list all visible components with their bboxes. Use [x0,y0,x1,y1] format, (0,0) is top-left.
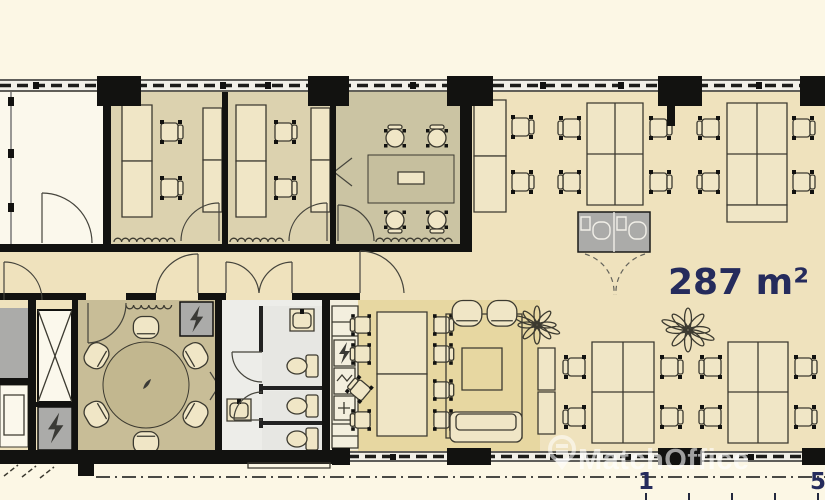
chair-icon [433,314,454,336]
wall [259,306,263,352]
chair-icon [350,314,371,336]
wall [322,300,330,452]
desk-icon [122,105,152,161]
wall [460,92,472,244]
wall [30,293,86,300]
mullion [33,82,39,89]
floor-plan-svg: 287 m² MatchOffice 1 5 [0,0,825,500]
electrical-shaft [38,407,72,450]
area-label: 287 m² [668,262,809,303]
office-chair-icon [794,405,817,429]
wall [72,300,78,450]
desk-icon [236,161,266,217]
sink-icon [227,399,251,421]
floor-plan: 287 m² MatchOffice 1 5 [0,0,825,500]
column [97,76,141,106]
sofa-icon [450,412,522,442]
wall [330,92,336,244]
cable-box-icon [398,172,424,184]
wall-stub [78,463,94,476]
column [447,76,493,106]
elevator-icon [0,308,28,378]
column [800,76,825,106]
desk-icon [122,161,152,217]
office-chair-icon [697,116,720,140]
office-chair-icon [794,355,817,379]
wall [292,293,360,300]
desk-icon [311,108,330,160]
column [658,76,702,106]
office-chair-icon [699,355,722,379]
sink-icon [290,309,314,331]
office-chair-icon [697,170,720,194]
chair-icon [133,317,158,339]
mullion [265,82,271,89]
mullion [220,82,226,89]
elevator-shaft-icon [38,310,72,402]
armchair-icon [487,301,517,327]
office-chair-icon [558,170,581,194]
chair-icon [433,343,454,365]
desk-icon [474,100,506,156]
office-chair-icon [511,170,534,194]
office-chair-icon [649,170,672,194]
electrical-shaft [180,302,213,336]
office-chair-icon [160,120,183,144]
column [802,448,825,465]
mullion [756,82,762,89]
column [447,448,491,465]
desk-icon [538,392,555,434]
column [332,448,350,465]
dining-table [377,312,427,374]
office-chair-icon [274,120,297,144]
office-chair-icon [274,176,297,200]
mullion [410,82,416,89]
office-chair-icon [563,405,586,429]
office-chair-icon [792,116,815,140]
desk-icon [236,105,266,161]
office-chair-icon [558,116,581,140]
mullion [618,82,624,89]
column [308,76,349,106]
chair-icon [350,409,371,431]
wall [126,293,156,300]
wall [262,386,322,390]
wall [0,450,350,464]
wall [103,92,111,244]
chair-icon [350,343,371,365]
wall [28,300,36,450]
office-chair-icon [660,405,683,429]
wall [215,300,222,450]
wall [36,402,74,407]
wall [0,378,36,385]
wall [198,293,226,300]
office-chair-icon [563,355,586,379]
wall [0,293,36,300]
office-chair-icon [160,176,183,200]
mullion [390,454,396,460]
armchair-icon [452,301,482,327]
office-chair-icon [660,355,683,379]
desk-icon [538,348,555,390]
watermark-text: MatchOffice [578,444,749,476]
chair-icon [433,379,454,401]
wall [262,421,322,425]
office-chair-icon [792,170,815,194]
dining-table [377,374,427,436]
office-chair-icon [699,405,722,429]
desk-icon [474,156,506,212]
wall [0,244,472,252]
office-chair-icon [511,115,534,139]
scale-label-start: 1 [638,469,654,495]
mullion [540,82,546,89]
desk-icon [203,108,222,160]
scale-label-end: 5 [810,469,825,495]
wall [222,92,228,244]
